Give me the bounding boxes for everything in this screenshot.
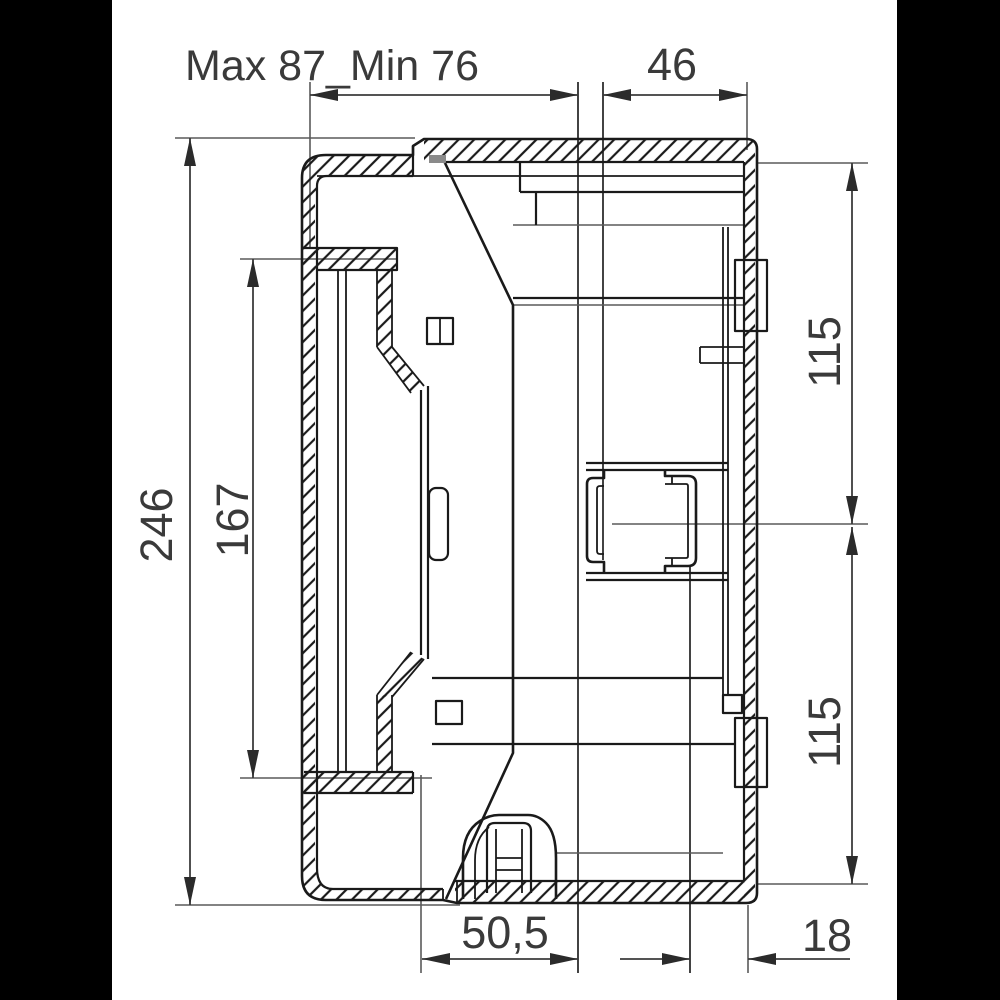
dim-label-lower-spacing: 115 [799,696,850,768]
dim-label-top-span: Max 87_Min 76 [185,42,479,90]
dim-label-bottom-right-span: 18 [802,910,852,961]
letterbox-left [0,0,112,1000]
dim-label-top-right-span: 46 [647,39,697,90]
dim-label-opening-height: 167 [207,482,258,557]
letterbox-right [897,0,1000,1000]
mounting-clip [586,463,728,580]
dim-label-bottom-span: 50,5 [461,907,549,958]
drawing-canvas: Max 87_Min 76 46 246 167 115 115 50,5 18 [0,0,1000,1000]
section-hatching [302,139,755,902]
dim-label-overall-height: 246 [131,487,182,562]
dim-label-upper-spacing: 115 [799,316,850,388]
section-drawing: Max 87_Min 76 46 246 167 115 115 50,5 18 [0,0,1000,1000]
